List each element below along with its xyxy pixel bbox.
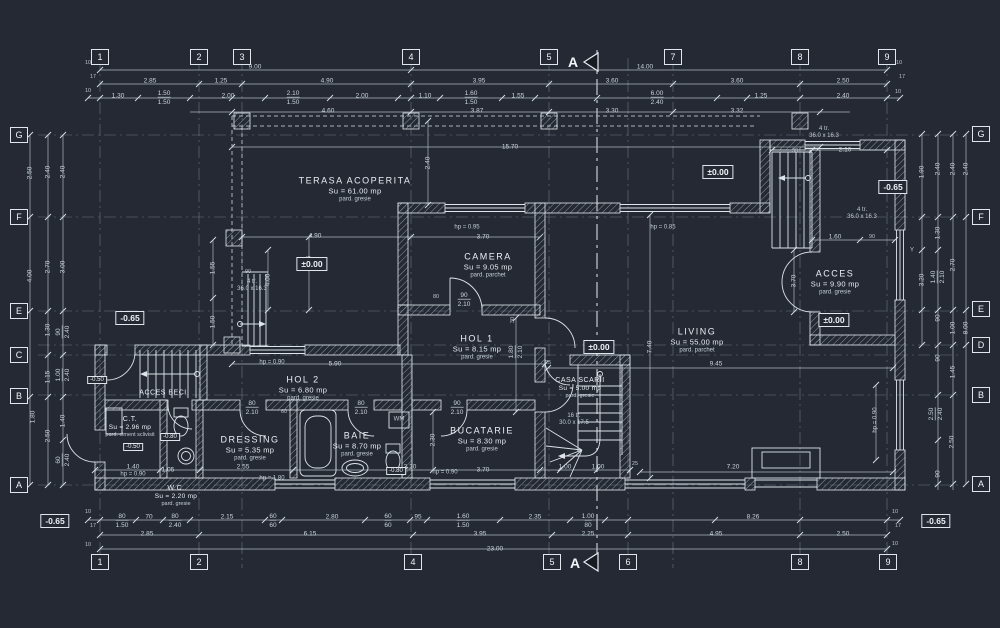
dimension-label: 10: [85, 509, 91, 515]
annotation-label: hp = 0.85: [650, 225, 675, 232]
dimension-label: 30: [510, 317, 516, 323]
dimension-label: 1.90: [918, 166, 925, 179]
room-name: HOL 1: [453, 334, 501, 344]
grid-axis-bubble: A: [972, 476, 990, 492]
dimension-label: 1.50 1.50: [158, 90, 171, 106]
dimension-label: 1.55: [209, 262, 216, 275]
annotation-label: 16 tr. 30.0 x 17.5: [559, 413, 589, 427]
room-label: ACCES BECI: [139, 390, 186, 397]
grid-axis-label: 1: [97, 52, 102, 62]
dimension-label: 2.00: [222, 92, 235, 99]
dimension-label: 90: [869, 234, 875, 240]
dimension-label: 17: [90, 74, 96, 80]
room-floor-finish: pard. ciment sclivisit: [105, 432, 154, 438]
room-name: CASA SCARII: [555, 377, 604, 384]
room-name: ACCES BECI: [139, 390, 186, 397]
grid-axis-bubble: 5: [540, 49, 558, 65]
dimension-label: 90 2.10: [458, 292, 471, 308]
annotation-label: WM: [394, 417, 405, 424]
dimension-label: 2.55: [237, 463, 250, 470]
grid-axis-label: 2: [196, 557, 201, 567]
elevation-marker: -0.50: [87, 376, 107, 384]
room-name: CAMERA: [464, 252, 512, 262]
grid-axis-bubble: 7: [664, 49, 682, 65]
grid-axis-label: 9: [885, 557, 890, 567]
room-name: LIVING: [671, 327, 724, 337]
elevation-marker: ±0.00: [818, 313, 849, 327]
dimension-label: 17: [895, 523, 901, 529]
dimension-label: 1.00 2.40: [55, 369, 71, 382]
room-area: Su = 2.96 mp: [105, 424, 154, 431]
dimension-label: 14.00: [637, 63, 653, 70]
dimension-label: 2.40: [424, 157, 431, 170]
dimension-label: 2.50: [837, 77, 850, 84]
grid-axis-bubble: 5: [543, 554, 561, 570]
elevation-marker: -0.65: [115, 311, 144, 325]
dimension-label: 80 1.50: [116, 513, 129, 529]
dimension-label: 3.60: [731, 77, 744, 84]
grid-axis-label: B: [978, 390, 984, 400]
dimension-label: 25: [632, 461, 638, 467]
grid-axis-label: E: [978, 304, 984, 314]
dimension-label: 60 60: [269, 513, 276, 529]
grid-axis-label: D: [978, 340, 985, 350]
dimension-label: 2.00: [356, 92, 369, 99]
dimension-label: 2.70: [44, 261, 51, 274]
dimension-label: 3.30: [606, 107, 619, 114]
dimension-label: 9.45: [710, 360, 723, 367]
dimension-label: 3.70: [477, 233, 490, 240]
grid-axis-label: 4: [408, 52, 413, 62]
room-floor-finish: pard. gresie: [333, 452, 381, 458]
grid-axis-bubble: 4: [404, 554, 422, 570]
dimension-label: 60 2.40: [55, 454, 71, 467]
grid-axis-bubble: F: [10, 209, 28, 225]
floor-plan-canvas: A A 1 2 3 4 5 7 8 9 1 2 4 5 6 8 9: [0, 0, 1000, 628]
grid-axis-bubble: 4: [402, 49, 420, 65]
room-area: Su = 2.20 mp: [155, 493, 197, 500]
dimension-label: 2.85: [144, 77, 157, 84]
dimension-label: 1.30: [44, 324, 51, 337]
section-arrow-icon: [584, 553, 598, 571]
dimension-label: 3.87: [471, 107, 484, 114]
grid-axis-bubble: B: [972, 387, 990, 403]
dimension-label: 70: [145, 513, 152, 520]
dimension-label: 10: [85, 88, 91, 94]
dimension-label: 1.25: [755, 92, 768, 99]
dimension-label: 3.60: [606, 77, 619, 84]
dimension-label: 2.15: [221, 513, 234, 520]
dimension-label: 90: [245, 269, 251, 275]
grid-axis-label: 2: [196, 52, 201, 62]
dimension-label: 25: [545, 360, 551, 366]
dimension-label: 1.80 2.10: [508, 346, 524, 359]
annotation-label: hp = 1.80: [259, 476, 284, 483]
room-area: Su = 9.90 mp: [811, 280, 859, 289]
dimension-label: 90: [934, 354, 941, 361]
room-area: Su = 8.70 mp: [333, 442, 381, 451]
room-label: DRESSING Su = 5.35 mp pard. gresie: [220, 435, 279, 462]
dimension-label: 3.70: [477, 466, 490, 473]
dimension-label: 90: [934, 314, 941, 321]
elevation-marker: ±0.00: [583, 340, 614, 354]
room-label: BUCATARIE Su = 8.30 mp pard. gresie: [450, 426, 514, 453]
room-label: TERASA ACOPERITA Su = 61.00 mp pard. gre…: [299, 176, 412, 203]
dimension-label: 15.70: [502, 143, 518, 150]
room-name: HOL 2: [279, 375, 327, 385]
dimension-label: 1.60 1.50: [457, 513, 470, 529]
grid-axis-label: F: [16, 212, 22, 222]
grid-axis-bubble: C: [10, 347, 28, 363]
grid-axis-label: 8: [797, 557, 802, 567]
dimension-label: 2.25: [582, 530, 595, 537]
dimension-label: 7.20: [727, 463, 740, 470]
room-label: LIVING Su = 55.00 mp pard. parchet: [671, 327, 724, 354]
room-floor-finish: pard. gresie: [279, 396, 327, 402]
grid-axis-bubble: 1: [91, 49, 109, 65]
dimension-label: 7.40: [646, 341, 653, 354]
dimension-label: 10: [892, 541, 898, 547]
dimension-label: 1.25: [215, 77, 228, 84]
dimension-label: 4.95: [710, 530, 723, 537]
dimension-label: 2.35: [529, 513, 542, 520]
grid-axis-label: 3: [239, 52, 244, 62]
annotation-label: hp = 0.95: [454, 225, 479, 232]
dimension-label: 2.30: [429, 434, 436, 447]
room-floor-finish: pard. gresie: [555, 393, 604, 399]
dimension-label: 3.70: [790, 275, 797, 288]
dimension-label: 80 2.40: [169, 513, 182, 529]
annotation-label: hp = 0.90: [120, 472, 145, 479]
dimension-label: 1.15: [44, 371, 51, 384]
grid-axis-bubble: D: [972, 337, 990, 353]
dimension-label: 1.60: [829, 233, 842, 240]
room-floor-finish: pard. gresie: [299, 197, 412, 203]
dimension-label: 2.50: [26, 167, 33, 180]
grid-axis-bubble: E: [972, 301, 990, 317]
room-name: BUCATARIE: [450, 426, 514, 436]
dimension-label: 80 2.10: [355, 400, 368, 416]
grid-axis-bubble: 2: [190, 554, 208, 570]
grid-axis-label: 1: [97, 557, 102, 567]
dimension-label: 2.40: [949, 163, 956, 176]
annotation-label: hp = 0.90: [432, 470, 457, 477]
dimension-label: 2.50: [837, 530, 850, 537]
dimension-label: 1.00 80: [582, 513, 595, 529]
room-floor-finish: pard. parchet: [464, 273, 512, 279]
room-name: W.C.: [155, 485, 197, 492]
room-floor-finish: pard. gresie: [811, 290, 859, 296]
section-cut-arrows: [584, 53, 598, 571]
grid-axis-label: 5: [546, 52, 551, 62]
sink: [342, 460, 368, 476]
dimension-label: 60 60: [384, 513, 391, 529]
grid-axis-label: A: [16, 480, 22, 490]
dimension-label: 1.00: [949, 322, 956, 335]
elevation-marker: ±0.00: [296, 257, 327, 271]
elevation-marker: -0.50: [123, 443, 143, 451]
dimension-label: 1.50: [209, 316, 216, 329]
dimension-label: 1.40: [127, 463, 140, 470]
room-floor-finish: pard. parchet: [671, 348, 724, 354]
room-name: DRESSING: [220, 435, 279, 445]
dimension-label: 80: [433, 294, 439, 300]
grid-axis-label: 6: [625, 557, 630, 567]
dimension-label: 1.40 2.10: [930, 271, 946, 284]
room-floor-finish: pard. gresie: [453, 355, 501, 361]
dimension-label: 5.90: [329, 360, 342, 367]
grid-axis-bubble: 8: [791, 554, 809, 570]
dimension-label: 90 2.10: [451, 400, 464, 416]
dimension-label: 4.00: [26, 270, 33, 283]
room-area: Su = 9.05 mp: [464, 263, 512, 272]
dimension-label: 4.90: [321, 77, 334, 84]
grid-axis-label: 4: [410, 557, 415, 567]
dimension-label: 1.80: [29, 411, 36, 424]
dimension-label: 90: [934, 470, 941, 477]
dimension-label: 2.70: [949, 259, 956, 272]
grid-axis-bubble: 6: [619, 554, 637, 570]
dimension-label: 10: [896, 60, 902, 66]
section-marker-top: A: [568, 54, 578, 70]
elevation-marker: -0.65: [40, 514, 69, 528]
dimension-label: 17: [90, 523, 96, 529]
dimension-label: 2.80: [326, 513, 339, 520]
grid-axis-label: C: [16, 350, 23, 360]
room-label: ACCES Su = 9.90 mp pard. gresie: [811, 269, 859, 296]
grid-axis-label: 5: [549, 557, 554, 567]
dimension-label: 1.55: [512, 92, 525, 99]
grid-axis-bubble: G: [10, 127, 28, 143]
grid-axis-bubble: 9: [879, 554, 897, 570]
room-label: HOL 2 Su = 6.80 mp pard. gresie: [279, 375, 327, 402]
room-name: BAIE: [333, 431, 381, 441]
grid-axis-label: F: [978, 212, 984, 222]
grid-axis-bubble: A: [10, 477, 28, 493]
section-arrow-icon: [584, 53, 598, 71]
elevation-marker: -0.65: [921, 514, 950, 528]
dimension-label: 1.00: [559, 463, 572, 470]
room-area: Su = 5.35 mp: [220, 446, 279, 455]
dimension-label: 2.40: [59, 166, 66, 179]
dimension-label: 1.00: [592, 463, 605, 470]
room-name: C.T.: [105, 416, 154, 423]
dimension-label: 10: [85, 542, 91, 548]
elevation-marker: ±0.00: [702, 165, 733, 179]
grid-axis-label: 7: [670, 52, 675, 62]
elevation-marker: -0.80: [160, 433, 180, 441]
dimension-label: 2.40: [934, 163, 941, 176]
dimension-label: 3.95: [473, 77, 486, 84]
grid-axis-label: B: [16, 391, 22, 401]
dimension-label: 60: [281, 409, 287, 415]
room-label: W.C. Su = 2.20 mp pard. gresie: [155, 485, 197, 507]
dimension-label: 2.40: [962, 163, 969, 176]
dimension-label: 3.20: [918, 274, 925, 287]
grid-axis-bubble: 8: [791, 49, 809, 65]
dimension-label: 8.00: [962, 322, 969, 335]
room-area: Su = 6.80 mp: [279, 386, 327, 395]
room-label: C.T. Su = 2.96 mp pard. ciment sclivisit: [105, 416, 154, 438]
dimension-label: 80 2.10: [246, 400, 259, 416]
room-label: BAIE Su = 8.70 mp pard. gresie: [333, 431, 381, 458]
annotation-label: Y: [910, 248, 914, 255]
dimension-label: 2.50: [948, 436, 955, 449]
dimension-label: 17: [899, 74, 905, 80]
dimension-label: 1.10: [419, 92, 432, 99]
dimension-label: 1.60 1.50: [465, 90, 478, 106]
room-label: CASA SCARII Su = 5.00 mp pard. gresie: [555, 377, 604, 399]
dimension-label: 1.30: [112, 92, 125, 99]
section-marker-bottom: A: [570, 555, 580, 571]
dimension-label: 2.50 2.40: [928, 408, 944, 421]
dimension-label: 23.00: [487, 545, 503, 552]
annotation-label: 4 tr. 36.0 x 16.3: [237, 279, 267, 293]
annotation-label: 4 tr. 36.0 x 16.3: [847, 207, 877, 221]
elevation-marker: -0.65: [878, 180, 907, 194]
elevation-marker: -0.80: [386, 467, 406, 475]
dimension-label: 1.05: [162, 466, 175, 473]
room-label: CAMERA Su = 9.05 mp pard. parchet: [464, 252, 512, 279]
doors: [67, 252, 812, 462]
room-floor-finish: pard. gresie: [155, 501, 197, 507]
dimension-label: 1.40: [59, 415, 66, 428]
dimension-label: 2.40: [44, 166, 51, 179]
dimension-label: 8.26: [747, 513, 760, 520]
grid-axis-label: G: [977, 129, 984, 139]
annotation-label: hp = 0.90: [259, 360, 284, 367]
dimension-label: 3.00: [59, 261, 66, 274]
grid-axis-bubble: 9: [878, 49, 896, 65]
dimension-label: 2.10 1.50: [287, 90, 300, 106]
dimension-label: 4.90: [309, 232, 322, 239]
dimension-label: 1.45: [949, 366, 956, 379]
dimension-label: 1.30: [934, 227, 941, 240]
dimension-label: 90: [792, 148, 798, 154]
dimension-label: 3.95: [474, 530, 487, 537]
grid-axis-label: 9: [884, 52, 889, 62]
grid-axis-label: E: [16, 306, 22, 316]
room-area: Su = 55.00 mp: [671, 338, 724, 347]
room-floor-finish: pard. gresie: [450, 447, 514, 453]
room-floor-finish: pard. gresie: [220, 456, 279, 462]
grid-axis-label: 8: [797, 52, 802, 62]
room-area: Su = 61.00 mp: [299, 187, 412, 196]
grid-axis-bubble: B: [10, 388, 28, 404]
dimension-label: 90 2.40: [55, 326, 71, 339]
grid-axis-label: G: [15, 130, 22, 140]
grid-axis-label: A: [978, 479, 984, 489]
sink: [178, 448, 194, 464]
grid-axis-bubble: F: [972, 209, 990, 225]
dimension-label: 6.00 2.40: [651, 90, 664, 106]
room-area: Su = 5.00 mp: [555, 385, 604, 392]
grid-axis-bubble: 2: [190, 49, 208, 65]
dimension-label: 4.60: [322, 107, 335, 114]
dimension-label: 2.85: [141, 530, 154, 537]
grid-axis-bubble: E: [10, 303, 28, 319]
dimension-label: 3.32: [731, 107, 744, 114]
annotation-label: 4 tr. 36.0 x 16.3: [809, 126, 839, 140]
room-name: ACCES: [811, 269, 859, 279]
dimension-label: 2.40: [837, 92, 850, 99]
annotation-label: hp = 0.90: [873, 407, 880, 432]
dimension-label: 2.10: [839, 146, 852, 153]
room-area: Su = 8.30 mp: [450, 437, 514, 446]
grid-axis-bubble: 1: [91, 554, 109, 570]
room-area: Su = 8.15 mp: [453, 345, 501, 354]
dimension-label: 6.15: [304, 530, 317, 537]
grid-axis-bubble: G: [972, 126, 990, 142]
room-label: HOL 1 Su = 8.15 mp pard. gresie: [453, 334, 501, 361]
dimension-label: 10: [895, 89, 901, 95]
dimension-label: 2.50: [44, 430, 51, 443]
grid-axis-bubble: 3: [233, 49, 251, 65]
room-name: TERASA ACOPERITA: [299, 176, 412, 186]
dimension-label: 10: [892, 509, 898, 515]
dimension-label: 95: [414, 513, 421, 520]
